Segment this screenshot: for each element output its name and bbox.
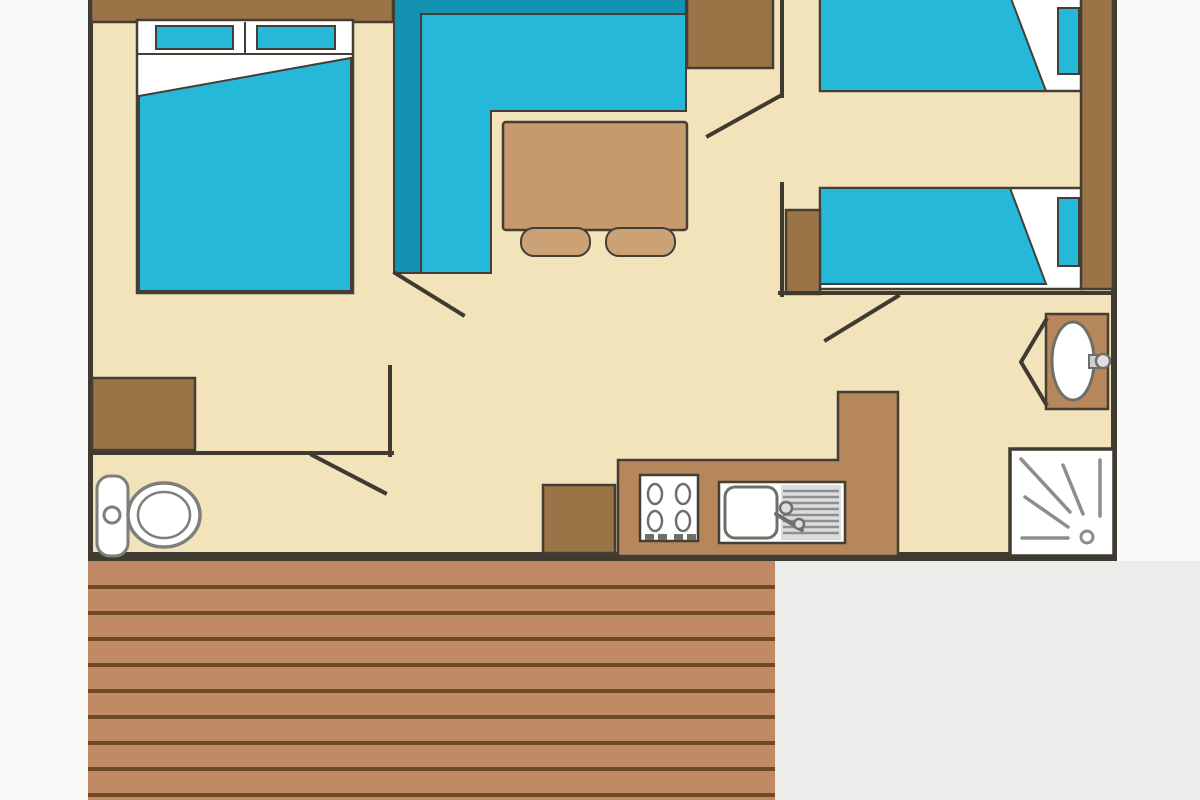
washbasin-bowl xyxy=(1052,322,1094,400)
background-lower-right xyxy=(775,561,1200,800)
stove-hob xyxy=(640,475,698,541)
burner-icon xyxy=(648,511,662,531)
double-bed-blanket xyxy=(139,58,351,291)
single-bed-bottom-blanket xyxy=(820,188,1046,284)
floor-plan-drawing xyxy=(0,0,1200,800)
burner-icon xyxy=(676,511,690,531)
wall-left xyxy=(88,0,93,556)
pillow-right xyxy=(257,26,335,49)
head-shelf xyxy=(91,0,393,22)
single-bed-bottom-pillow xyxy=(1058,198,1079,266)
burner-icon xyxy=(648,484,662,504)
toilet-flush-button xyxy=(104,507,120,523)
kitchen-cabinet xyxy=(543,485,615,553)
stool-right xyxy=(606,228,675,256)
burner-icon xyxy=(676,484,690,504)
washbasin xyxy=(1046,314,1110,409)
faucet-knob xyxy=(794,519,804,529)
shower xyxy=(1010,449,1114,556)
single-bed-top-blanket xyxy=(820,0,1046,91)
wardrobe-top xyxy=(687,0,773,68)
hob-knob xyxy=(658,534,667,540)
faucet-icon xyxy=(780,502,792,514)
wardrobe-left xyxy=(92,378,195,450)
hob-knob xyxy=(645,534,654,540)
floor-plan-page xyxy=(0,0,1200,800)
hob-knob xyxy=(687,534,696,540)
hob-knob xyxy=(674,534,683,540)
nightstand xyxy=(786,210,820,294)
sink-bowl xyxy=(725,487,777,538)
stool-left xyxy=(521,228,590,256)
dining-table xyxy=(503,122,687,230)
hob-plate xyxy=(640,475,698,541)
shower-drain xyxy=(1081,531,1093,543)
wooden-deck xyxy=(88,561,775,800)
deck-planks xyxy=(88,561,775,800)
pillow-left xyxy=(156,26,233,49)
single-bed-top-pillow xyxy=(1058,8,1079,74)
headboard-column xyxy=(1081,0,1113,289)
double-bed xyxy=(137,20,353,293)
washbasin-tap-knob xyxy=(1096,354,1110,368)
kitchen-sink xyxy=(719,482,845,543)
